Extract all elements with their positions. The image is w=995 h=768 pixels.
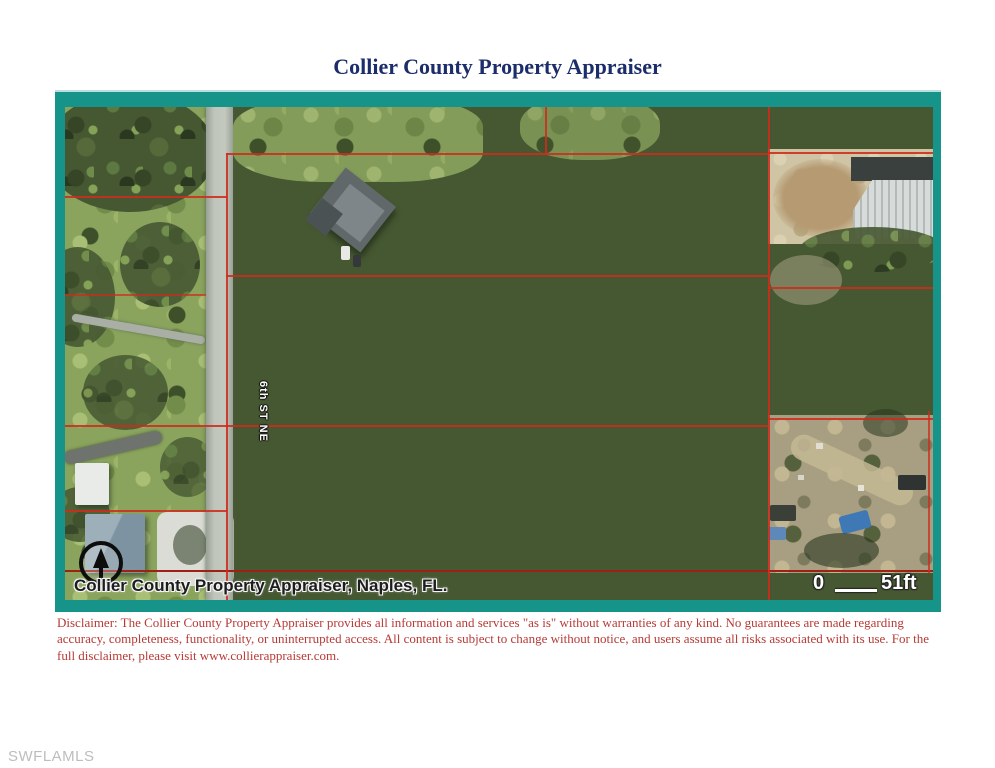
parcel-line (768, 152, 933, 154)
street-label: 6th ST NE (170, 381, 270, 395)
scale-start-label: 0 (813, 572, 824, 595)
scale-bar (835, 589, 877, 592)
bare-patch (770, 255, 842, 305)
watermark: SWFLAMLS (8, 748, 95, 765)
disclaimer-text: Disclaimer: The Collier County Property … (57, 615, 939, 664)
parcel-line (768, 107, 770, 600)
parcel-line (226, 275, 768, 277)
aerial-photo[interactable]: 6th ST NE Collier County Property Apprai… (65, 107, 933, 600)
barn-roof-dark (851, 157, 933, 181)
debris-white (798, 475, 804, 480)
grass-patch (233, 107, 483, 182)
debris-white (816, 443, 823, 449)
shed-roof-white (75, 463, 109, 505)
junk-yard (768, 415, 933, 573)
parcel-line (65, 510, 227, 512)
parcel-line (226, 153, 768, 155)
parcel-line (928, 411, 930, 573)
parcel-line (65, 196, 227, 198)
blue-tarp (768, 527, 786, 540)
scale-end-label: 51ft (881, 572, 917, 595)
map-attribution: Collier County Property Appraiser, Naple… (74, 576, 447, 596)
car-dark (353, 255, 361, 267)
road (206, 107, 233, 600)
parcel-line (768, 418, 933, 420)
tree-shadow (863, 409, 908, 437)
debris-white (858, 485, 864, 491)
tree-clump (83, 355, 168, 430)
truck-dark (898, 475, 926, 490)
map-frame: 6th ST NE Collier County Property Apprai… (55, 90, 941, 612)
parcel-line (768, 287, 933, 289)
page-title: Collier County Property Appraiser (0, 54, 995, 80)
dirt-path (787, 430, 918, 509)
parcel-line (65, 570, 933, 572)
parcel-line (545, 107, 547, 154)
truck-dark (770, 505, 796, 521)
blue-tarp (838, 509, 872, 534)
car-white (341, 246, 350, 260)
parcel-line (65, 294, 206, 296)
north-arrow-head (93, 548, 109, 568)
tree-shadow (173, 525, 207, 565)
tree-shadow (804, 533, 879, 568)
parcel-line (226, 153, 228, 600)
parcel-line (65, 425, 768, 427)
